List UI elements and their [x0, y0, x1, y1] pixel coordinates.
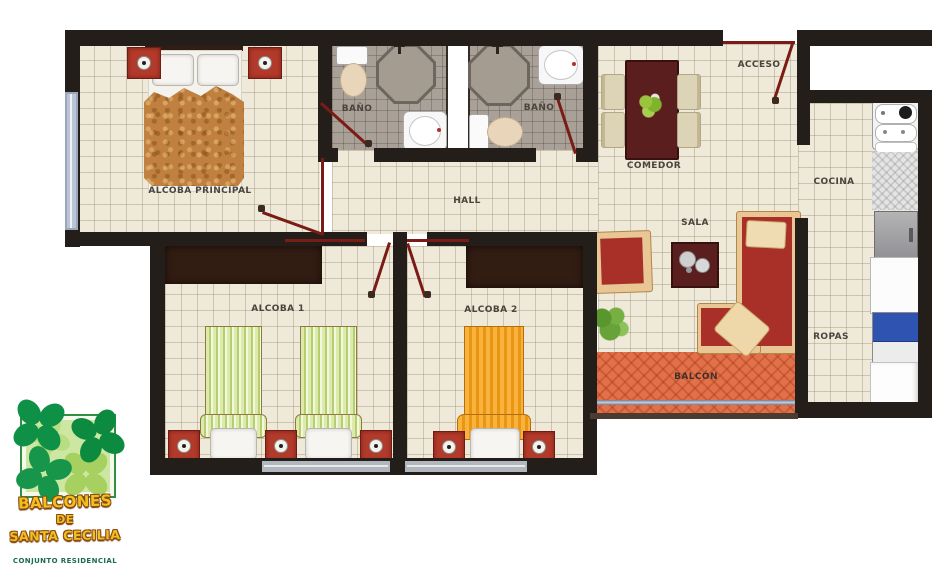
- room-label-bano-1: BAÑO: [328, 104, 386, 114]
- logo-line-1: BALCONES: [6, 491, 125, 513]
- washer-icon: [872, 312, 919, 364]
- kitchen-appliance: [874, 211, 918, 261]
- door-handle-icon: [368, 291, 375, 298]
- burner-dot: [881, 111, 885, 115]
- window: [405, 461, 527, 472]
- room-label-alcoba-1: ALCOBA 1: [248, 304, 308, 314]
- sink-tap-icon: [437, 128, 441, 132]
- floor-plan: ALCOBA PRINCIPAL BAÑO BAÑO HALL COMEDOR …: [0, 0, 950, 583]
- decor-plate: [679, 251, 696, 268]
- wall: [797, 30, 810, 145]
- room-label-cocina: COCINA: [804, 177, 864, 187]
- pillow: [210, 428, 257, 460]
- decor-ball: [686, 267, 692, 273]
- logo-line-2: DE: [6, 513, 124, 526]
- window-pane-line: [264, 465, 388, 467]
- wall: [374, 148, 536, 162]
- wall: [65, 30, 723, 46]
- duct-shaft: [446, 44, 470, 150]
- shower-floor: [379, 47, 433, 101]
- wall: [583, 232, 597, 475]
- door-frame: [285, 239, 365, 242]
- washer-lid: [873, 313, 918, 342]
- room-label-sala: SALA: [674, 218, 716, 228]
- logo-tagline: CONJUNTO RESIDENCIAL: [6, 557, 124, 565]
- pillow: [470, 428, 520, 462]
- coffee-table: [671, 242, 719, 288]
- room-label-alcoba-2: ALCOBA 2: [460, 305, 522, 315]
- room-label-balcon: BALCÓN: [666, 372, 726, 382]
- window-pane-line: [407, 465, 525, 467]
- closet: [165, 246, 322, 284]
- wall: [318, 30, 332, 162]
- chair: [601, 112, 625, 148]
- wall: [583, 30, 598, 162]
- logo-line-3: SANTA CECILIA: [6, 527, 124, 544]
- pillow: [197, 54, 239, 86]
- door-handle-icon: [365, 140, 372, 147]
- knob-icon: [532, 440, 546, 454]
- toilet-icon: [469, 114, 489, 150]
- appliance-handle: [909, 228, 913, 242]
- room-label-alcoba-principal: ALCOBA PRINCIPAL: [145, 186, 255, 196]
- window-pane-line: [70, 94, 72, 228]
- room-label-ropas: ROPAS: [804, 332, 858, 342]
- knob-icon: [369, 439, 383, 453]
- wall: [918, 90, 932, 418]
- wall: [576, 148, 598, 162]
- window: [262, 461, 390, 472]
- balcony-edge: [590, 413, 798, 419]
- room-label-comedor: COMEDOR: [620, 161, 688, 171]
- stove-burner-row: [875, 124, 917, 142]
- chair: [601, 74, 625, 110]
- nightstand: [248, 47, 282, 79]
- knob-icon: [137, 56, 151, 70]
- double-bed-blanket: [144, 86, 244, 186]
- knob-icon: [442, 440, 456, 454]
- door-leaf: [321, 158, 324, 234]
- table-centerpiece-plant: [636, 92, 664, 120]
- knob-icon: [258, 56, 272, 70]
- closet: [466, 246, 583, 288]
- room-label-acceso: ACCESO: [729, 60, 789, 70]
- window: [65, 92, 78, 230]
- toilet-bowl-icon: [487, 117, 523, 147]
- burner-large: [899, 106, 912, 119]
- door-frame: [407, 239, 469, 242]
- armchair-cushion: [600, 237, 644, 284]
- toilet-bowl-icon: [340, 63, 367, 97]
- nightstand: [127, 47, 161, 79]
- door-handle-icon: [258, 205, 265, 212]
- sink-basin: [409, 116, 441, 146]
- logo: BALCONES DE SANTA CECILIA CONJUNTO RESID…: [6, 392, 176, 580]
- decor-plate: [695, 258, 710, 273]
- balcony-railing: [592, 400, 798, 405]
- burner-dot: [901, 130, 905, 134]
- wall: [797, 30, 932, 46]
- chair: [677, 74, 701, 110]
- wall: [393, 232, 407, 473]
- wall: [806, 402, 932, 418]
- room-label-bano-2: BAÑO: [510, 103, 568, 113]
- chair: [677, 112, 701, 148]
- sofa-pillow: [745, 220, 786, 249]
- fridge-icon: [870, 257, 920, 314]
- wall: [810, 90, 932, 103]
- entry-door-frame: [723, 41, 795, 44]
- door-handle-icon: [772, 97, 779, 104]
- room-label-hall: HALL: [442, 196, 492, 206]
- wall: [795, 218, 808, 418]
- knob-icon: [177, 439, 191, 453]
- burner-dot: [883, 130, 887, 134]
- sink-tap-icon: [572, 62, 576, 66]
- door-handle-icon: [424, 291, 431, 298]
- knob-icon: [274, 439, 288, 453]
- armchair: [593, 230, 653, 294]
- kitchen-counter: [872, 152, 918, 210]
- door-handle-icon: [554, 93, 561, 100]
- pillow: [305, 428, 352, 460]
